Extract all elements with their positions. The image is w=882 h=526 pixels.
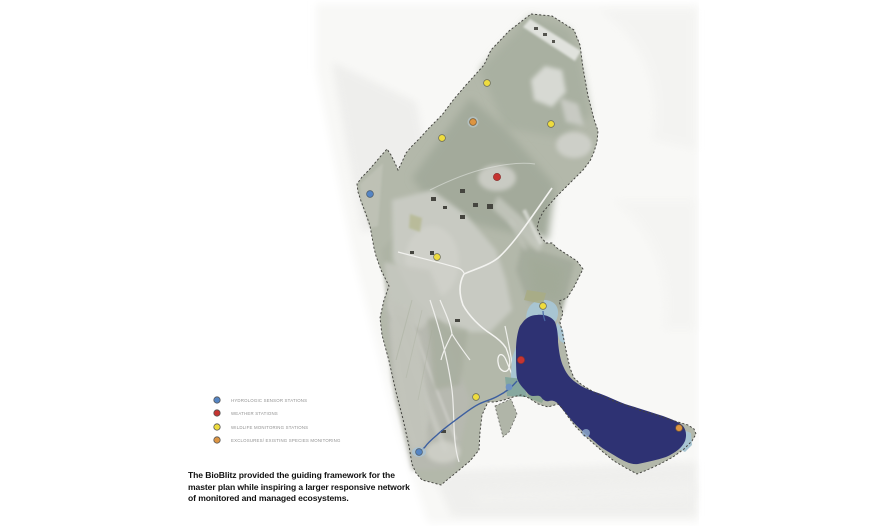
- svg-text:EXCLOSURES/ EXISTING SPECIES M: EXCLOSURES/ EXISTING SPECIES MONITORING: [231, 438, 341, 443]
- svg-text:WILDLIFE MONITORING STATIONS: WILDLIFE MONITORING STATIONS: [231, 425, 308, 430]
- svg-text:HYDROLOGIC SENSOR STATIONS: HYDROLOGIC SENSOR STATIONS: [231, 398, 307, 403]
- svg-text:WEATHER STATIONS: WEATHER STATIONS: [231, 411, 278, 416]
